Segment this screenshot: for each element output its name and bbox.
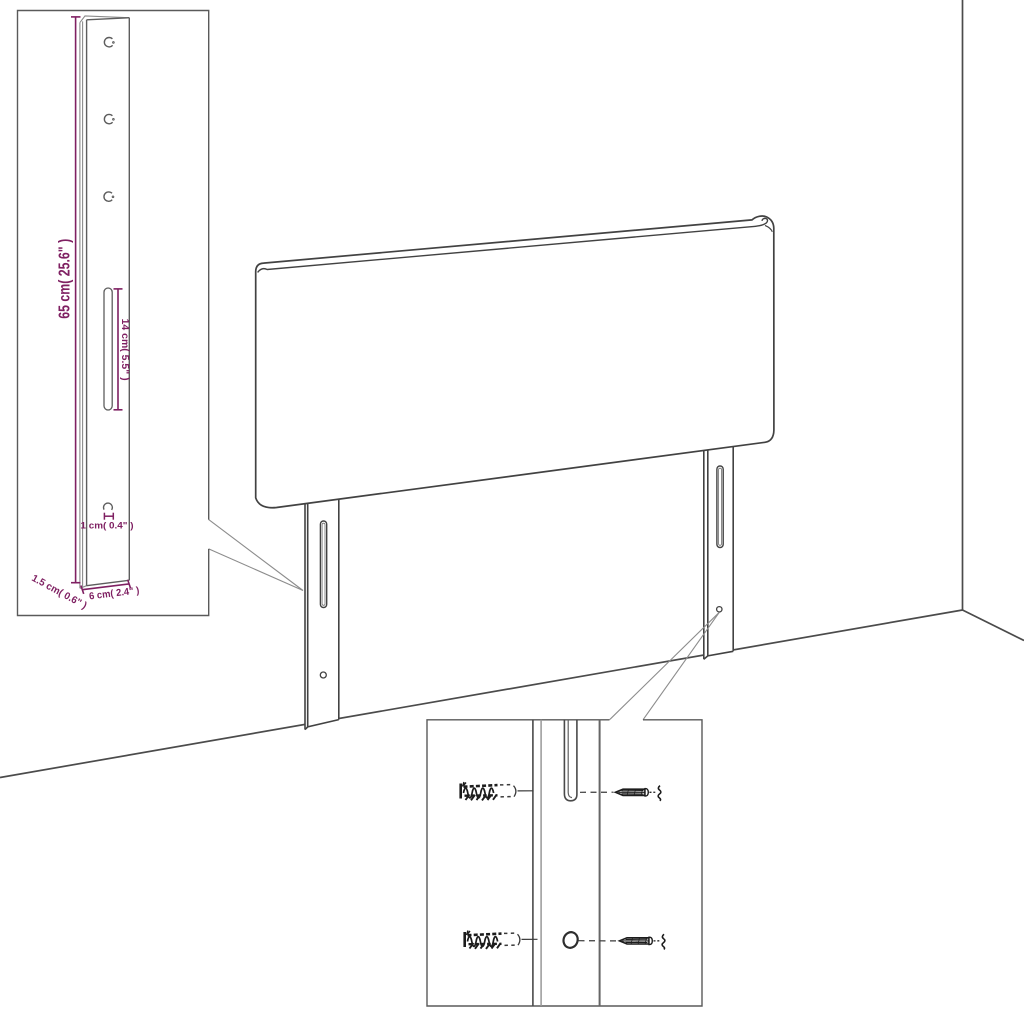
svg-text:65 cm( 25.6" ): 65 cm( 25.6" ) — [57, 239, 74, 319]
svg-text:14 cm( 5.5" ): 14 cm( 5.5" ) — [119, 319, 130, 381]
svg-text:1 cm( 0.4" ): 1 cm( 0.4" ) — [81, 521, 134, 532]
